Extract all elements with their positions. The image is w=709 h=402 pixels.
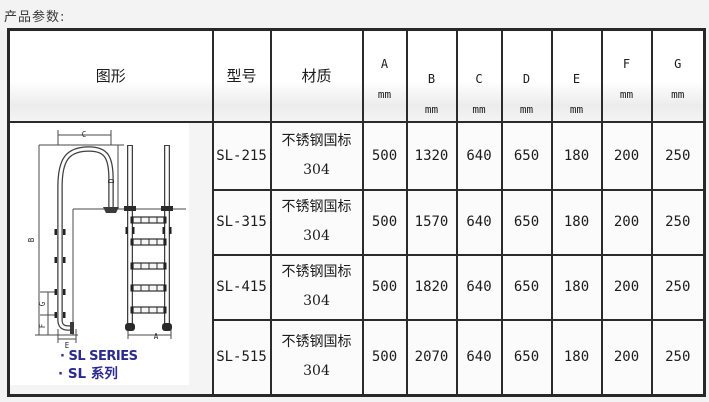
dim-label-b: B [27, 237, 36, 242]
dim-letter: F [603, 57, 651, 71]
value-cell-d: 650 [502, 255, 552, 320]
series-caption-en: · SL SERIES [60, 349, 138, 364]
value-cell-e: 180 [552, 320, 602, 396]
value-cell-f: 200 [602, 255, 652, 320]
front-view-ladder [124, 145, 173, 331]
value-cell-d: 650 [502, 320, 552, 396]
value-cell-d: 650 [502, 190, 552, 255]
dim-unit: mm [408, 103, 456, 116]
dim-letter: G [653, 57, 704, 71]
model-cell: SL-315 [213, 190, 271, 255]
header-dim-d: D mm [502, 30, 552, 122]
model-cell: SL-415 [213, 255, 271, 320]
value-cell-f: 200 [602, 320, 652, 396]
value-cell-d: 650 [502, 122, 552, 190]
dim-label-f: F [38, 323, 47, 328]
ladder-steps [131, 216, 167, 313]
header-material: 材质 [271, 30, 363, 122]
value-cell-a: 500 [363, 122, 407, 190]
value-cell-b: 2070 [407, 320, 457, 396]
product-spec-table: 图形 型号 材质 A mm B mm C mm D mm E mm F mm G… [7, 28, 706, 397]
dim-letter: A [364, 57, 406, 71]
value-cell-g: 250 [652, 190, 705, 255]
value-cell-e: 180 [552, 122, 602, 190]
value-cell-g: 250 [652, 122, 705, 190]
value-cell-g: 250 [652, 320, 705, 396]
figure-cell: C D B G F E A · SL SERIES · SL 系列 [9, 122, 213, 396]
material-line: 304 [272, 156, 362, 185]
dim-unit: mm [603, 88, 651, 101]
header-figure: 图形 [9, 30, 213, 122]
page-title: 产品参数: [4, 6, 65, 25]
dim-unit: mm [458, 103, 501, 116]
dim-unit: mm [553, 103, 601, 116]
material-line: 304 [272, 287, 362, 316]
table-row: C D B G F E A · SL SERIES · SL 系列 SL-215… [9, 122, 705, 190]
value-cell-a: 500 [363, 320, 407, 396]
material-line: 不锈钢国标 [272, 258, 362, 287]
dim-letter: B [408, 72, 456, 86]
value-cell-f: 200 [602, 190, 652, 255]
value-cell-b: 1570 [407, 190, 457, 255]
material-cell: 不锈钢国标 304 [271, 190, 363, 255]
model-cell: SL-515 [213, 320, 271, 396]
material-line: 304 [272, 357, 362, 386]
header-dim-f: F mm [602, 30, 652, 122]
dim-letter: C [458, 72, 501, 86]
value-cell-a: 500 [363, 190, 407, 255]
value-cell-b: 1320 [407, 122, 457, 190]
table-header-row: 图形 型号 材质 A mm B mm C mm D mm E mm F mm G… [9, 30, 705, 122]
header-dim-b: B mm [407, 30, 457, 122]
value-cell-a: 500 [363, 255, 407, 320]
dim-unit: mm [364, 88, 406, 101]
dim-label-c: C [82, 130, 87, 139]
material-line: 不锈钢国标 [272, 328, 362, 357]
value-cell-e: 180 [552, 255, 602, 320]
header-dim-a: A mm [363, 30, 407, 122]
dim-label-d: D [107, 178, 116, 183]
value-cell-c: 640 [457, 320, 502, 396]
material-cell: 不锈钢国标 304 [271, 255, 363, 320]
dim-letter: D [503, 72, 551, 86]
header-model: 型号 [213, 30, 271, 122]
value-cell-e: 180 [552, 190, 602, 255]
dim-unit: mm [503, 103, 551, 116]
header-dim-c: C mm [457, 30, 502, 122]
value-cell-g: 250 [652, 255, 705, 320]
dim-label-a: A [154, 332, 159, 341]
material-cell: 不锈钢国标 304 [271, 122, 363, 190]
header-dim-g: G mm [652, 30, 705, 122]
header-dim-e: E mm [552, 30, 602, 122]
dim-letter: E [553, 72, 601, 86]
side-view-handrail [55, 149, 120, 334]
value-cell-c: 640 [457, 190, 502, 255]
dim-label-g: G [38, 301, 47, 306]
material-line: 不锈钢国标 [272, 127, 362, 156]
dim-unit: mm [653, 88, 704, 101]
value-cell-f: 200 [602, 122, 652, 190]
model-cell: SL-215 [213, 122, 271, 190]
ladder-image: C D B G F E A · SL SERIES · SL 系列 [10, 123, 189, 385]
value-cell-c: 640 [457, 255, 502, 320]
value-cell-c: 640 [457, 122, 502, 190]
ladder-diagram: C D B G F E A · SL SERIES · SL 系列 [10, 123, 189, 385]
material-cell: 不锈钢国标 304 [271, 320, 363, 396]
value-cell-b: 1820 [407, 255, 457, 320]
material-line: 304 [272, 222, 362, 251]
material-line: 不锈钢国标 [272, 193, 362, 222]
series-caption-cn: · SL 系列 [58, 365, 118, 382]
